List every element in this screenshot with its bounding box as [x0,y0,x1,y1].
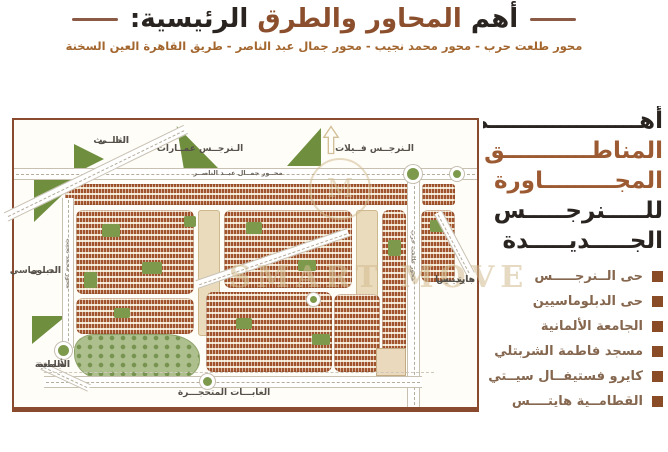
subtitle-roads: محور طلعت حرب - محور محمد نجيب - محور جم… [0,39,648,53]
list-item: كايرو فستيفــال سيــتي [483,369,663,384]
roundabout [450,167,464,181]
park [142,262,162,274]
main-title: أهم المحاور والطرق الرئيسية: [130,4,518,34]
square-bullet-icon [652,396,663,407]
watermark-text: SMART MOVE [229,260,529,295]
roundabout [404,165,422,183]
green-patch [32,316,66,344]
label-petrified-forest: الغابـــات المتحجـــرة [144,388,304,399]
list-item: القطامــية هايتــــس [483,394,663,409]
title-brown: المحاور والطرق [257,4,461,34]
panel-heading-line: الجـــــديـــــدة [483,226,663,256]
park [236,318,252,329]
housing-block [334,294,380,372]
housing-block [422,184,455,205]
list-item: الجامعة الألمانية [483,319,663,334]
plot-boundary-dashed [44,372,434,373]
roundabout [200,374,215,389]
label-narges-apartments: الـنرجــس عمــارات [154,144,246,155]
road-bottom [44,376,422,388]
panel-heading-line: للـــــنرجـــــس [483,196,663,226]
label-naguib-axis: محور محمد نجيب [65,229,72,299]
panel-heading-line: أهـــــــــــــــــــم [483,106,663,136]
park [114,308,130,318]
villa-compound-trees [74,334,200,380]
roundabout [55,342,72,359]
master-plan-map: M SMART MOVE الحـــى الثالـــث الـنرجــس… [12,118,479,412]
list-item: مسجد فاطمة الشربتلي [483,344,663,359]
page-title: أهم المحاور والطرق الرئيسية: [0,4,648,34]
label-talaat-axis: محور طلعت حرب [410,221,417,291]
title-rule-left [72,18,118,21]
list-item: حى الدبلوماسيين [483,294,663,309]
square-bullet-icon [652,371,663,382]
park [102,224,120,237]
square-bullet-icon [652,346,663,357]
header: أهم المحاور والطرق الرئيسية: محور طلعت ح… [0,4,648,53]
park [312,334,330,345]
title-dark-2: الرئيسية: [130,4,248,34]
square-bullet-icon [652,296,663,307]
title-rule-right [530,18,576,21]
park [84,272,97,288]
panel-heading-line: المجـــــــــاورة [483,166,663,196]
park [184,216,196,227]
square-bullet-icon [652,271,663,282]
label-nasser-axis: محــور جمــال عبــد الناصــر [184,170,292,178]
watermark-logo-circle: M [309,158,371,220]
panel-heading-line: المناطـــــــــــق [483,136,663,166]
housing-block [76,298,194,334]
label-narges-villas: الـنرجــس فــيلات [336,144,414,155]
square-bullet-icon [652,321,663,332]
title-dark-1: أهم [471,4,518,34]
park [246,222,262,234]
park [388,240,401,256]
green-patch [287,128,321,166]
page: أهم المحاور والطرق الرئيسية: محور طلعت ح… [0,0,668,452]
